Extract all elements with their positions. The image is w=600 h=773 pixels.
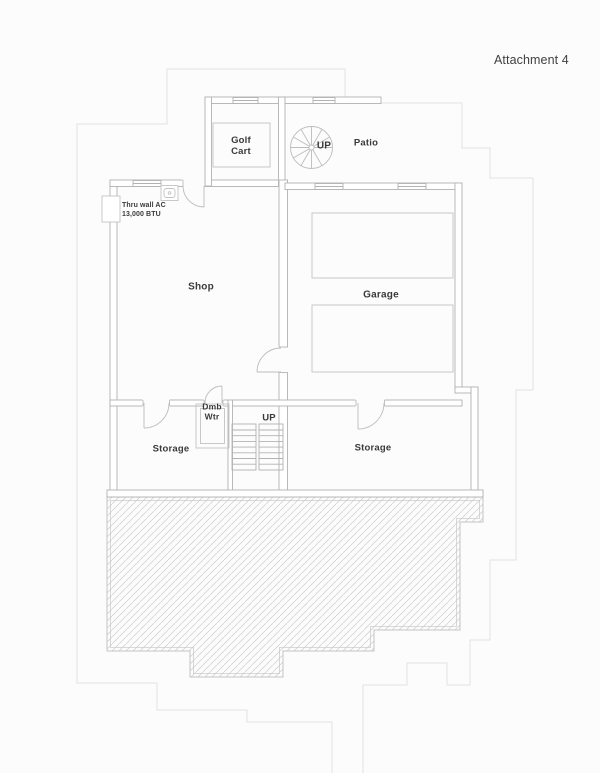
floor-plan-drawing	[0, 0, 600, 773]
garage-bay-1	[312, 213, 453, 278]
garage-bay-2	[312, 305, 453, 372]
ac-unit	[102, 196, 120, 222]
ac-note-label: Thru wall AC 13,000 BTU	[122, 201, 166, 219]
room-label-shop: Shop	[188, 282, 214, 293]
room-label-patio: Patio	[354, 138, 378, 149]
floor-plan-page: Attachment 4 Golf Cart Patio UP Shop Gar…	[0, 0, 600, 773]
room-label-golf-cart: Golf Cart	[231, 135, 251, 157]
door-swings	[143, 180, 385, 429]
room-label-garage: Garage	[363, 290, 399, 301]
stair-up-label: UP	[262, 413, 276, 424]
attachment-label: Attachment 4	[494, 53, 569, 67]
staircase	[232, 424, 283, 470]
unexcavated-hatch-area	[107, 497, 483, 677]
room-label-storage-right: Storage	[355, 443, 392, 454]
spiral-stair-up-label: UP	[317, 141, 331, 152]
room-label-storage-left: Storage	[153, 444, 190, 455]
site-outline	[77, 69, 533, 773]
sink-fixture	[161, 186, 178, 201]
room-label-dumbwaiter: Dmb Wtr	[202, 403, 222, 422]
